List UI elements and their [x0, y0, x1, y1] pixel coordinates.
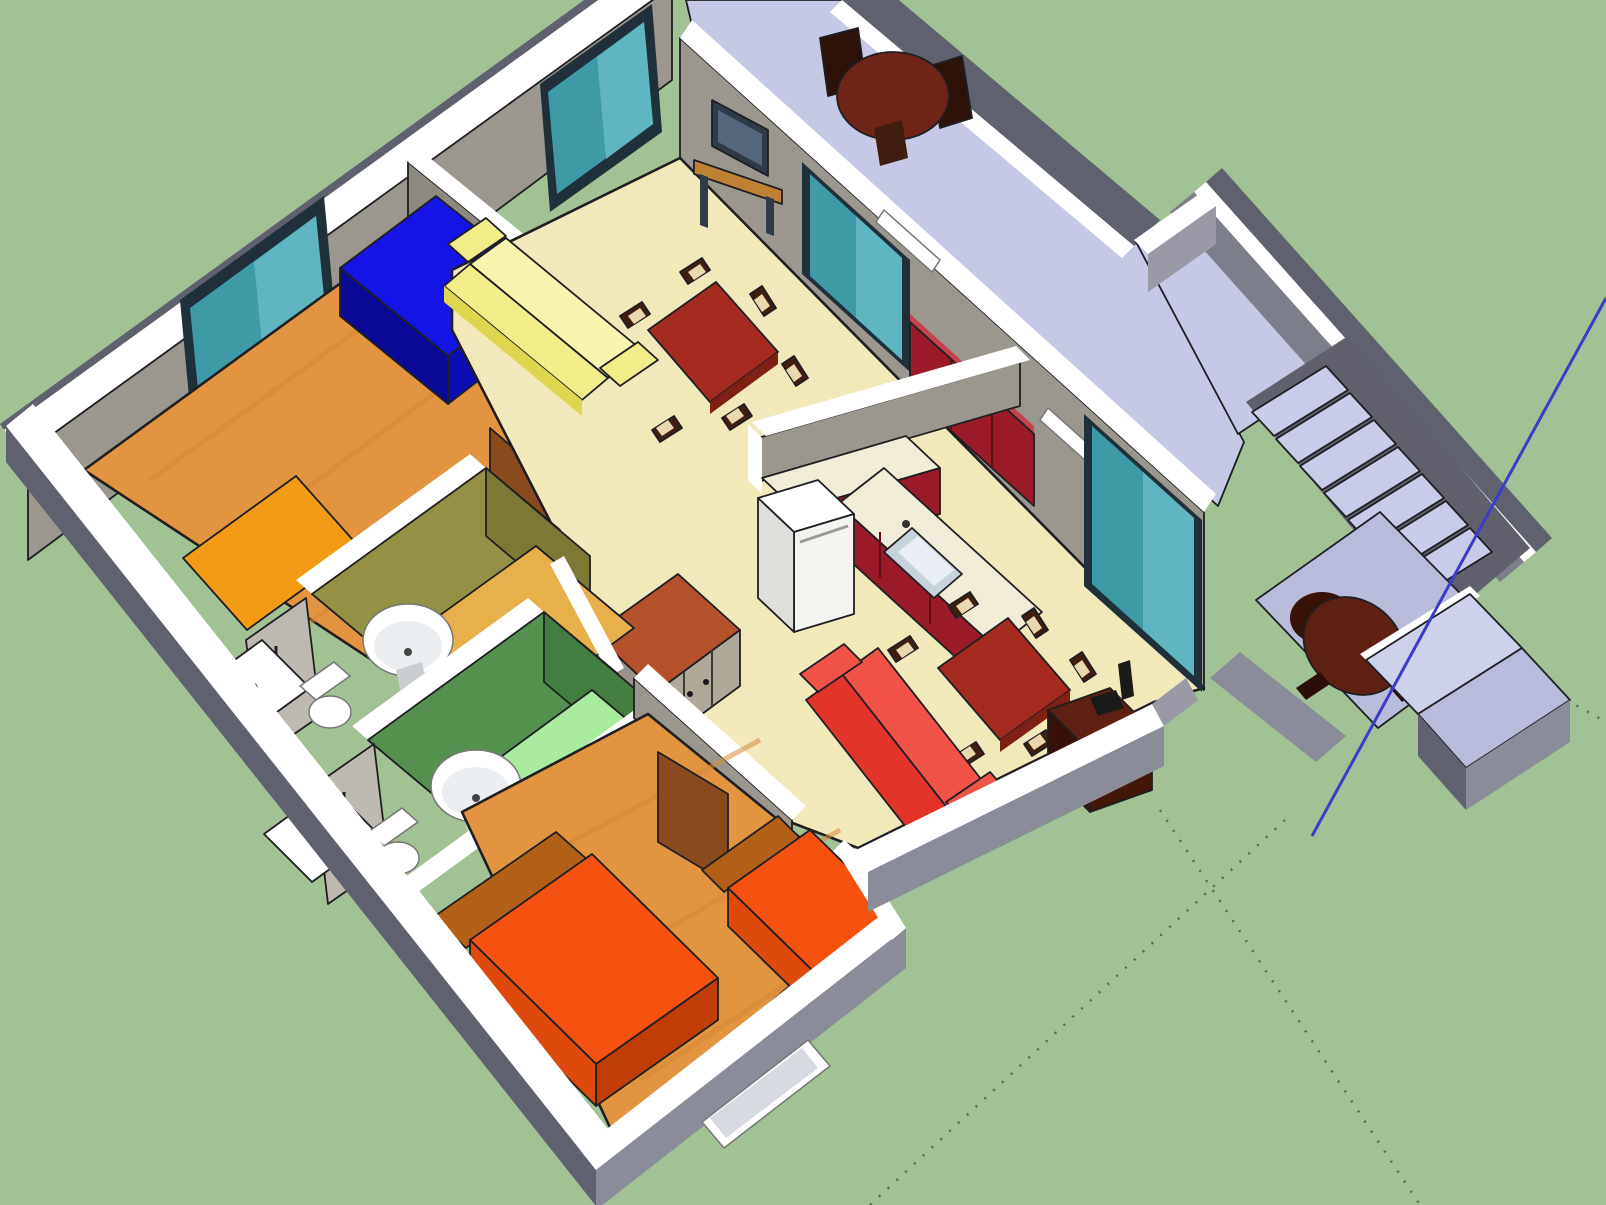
basin-drain	[472, 794, 480, 802]
fridge-front	[794, 514, 854, 632]
floorplan-3d-scene	[0, 0, 1606, 1205]
fridge	[758, 480, 854, 632]
tv-stand-leg	[766, 196, 774, 236]
faucet	[902, 520, 910, 528]
wardrobe-handle	[703, 679, 709, 685]
basin-drain	[404, 648, 412, 656]
wardrobe-handle	[687, 691, 693, 697]
basin-bowl	[374, 621, 442, 671]
toilet-bowl	[309, 696, 351, 728]
tv-stand-leg	[700, 174, 708, 228]
veranda-table-leg	[874, 120, 908, 166]
model-viewport[interactable]	[0, 0, 1606, 1205]
